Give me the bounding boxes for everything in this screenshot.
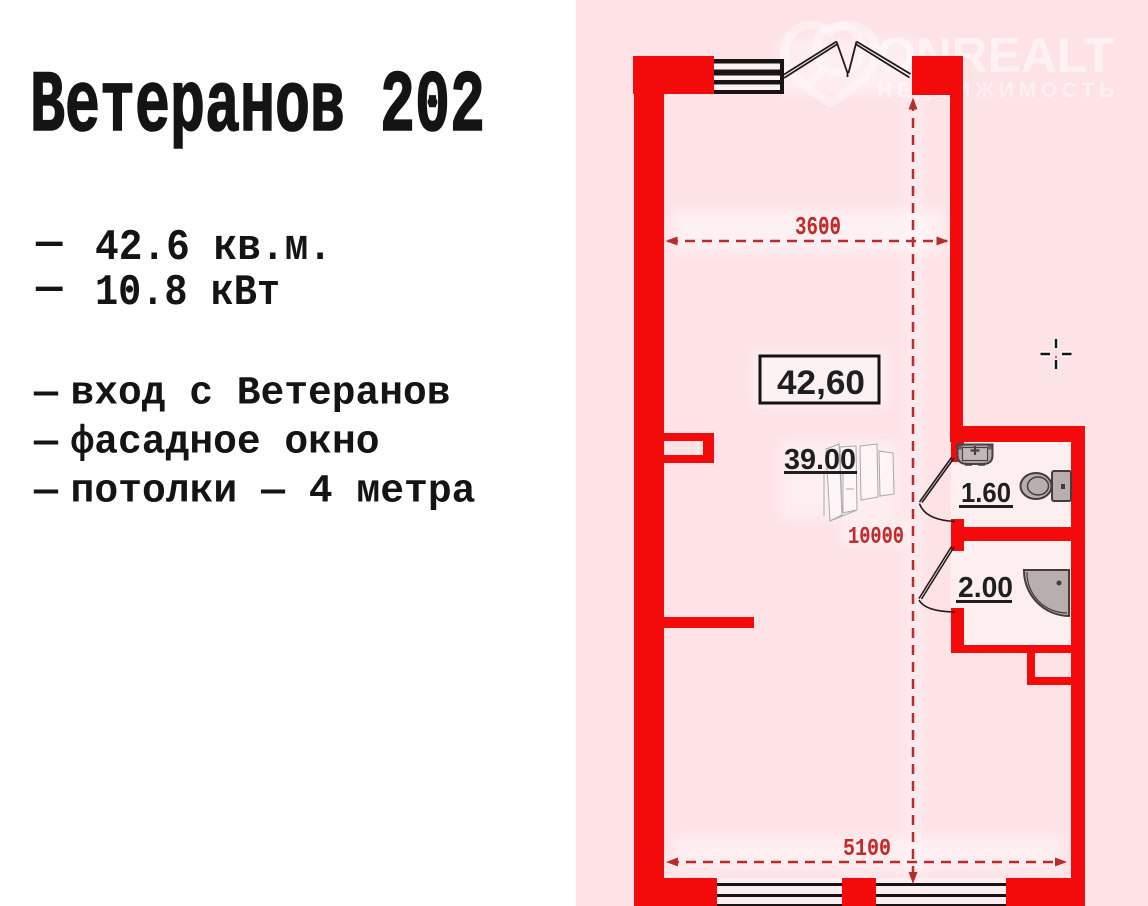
svg-text:—: — (33, 470, 59, 515)
svg-text:10.8 кВт: 10.8 кВт (95, 268, 280, 318)
svg-text:1.60: 1.60 (961, 477, 1011, 508)
svg-text:42,60: 42,60 (777, 364, 865, 402)
svg-text:фасадное окно: фасадное окно (71, 421, 380, 466)
svg-text:Ветеранов 202: Ветеранов 202 (30, 59, 485, 157)
svg-text:2.00: 2.00 (958, 572, 1013, 604)
svg-text:—: — (35, 219, 63, 269)
svg-text:вход с Ветеранов: вход с Ветеранов (71, 372, 451, 417)
svg-text:—: — (35, 264, 63, 314)
svg-text:5100: 5100 (843, 836, 891, 863)
svg-text:—: — (33, 372, 59, 417)
svg-text:42.6 кв.м.: 42.6 кв.м. (95, 223, 332, 273)
svg-text:потолки — 4 метра: потолки — 4 метра (71, 470, 476, 515)
svg-text:—: — (33, 421, 59, 466)
svg-text:10000: 10000 (848, 524, 904, 551)
